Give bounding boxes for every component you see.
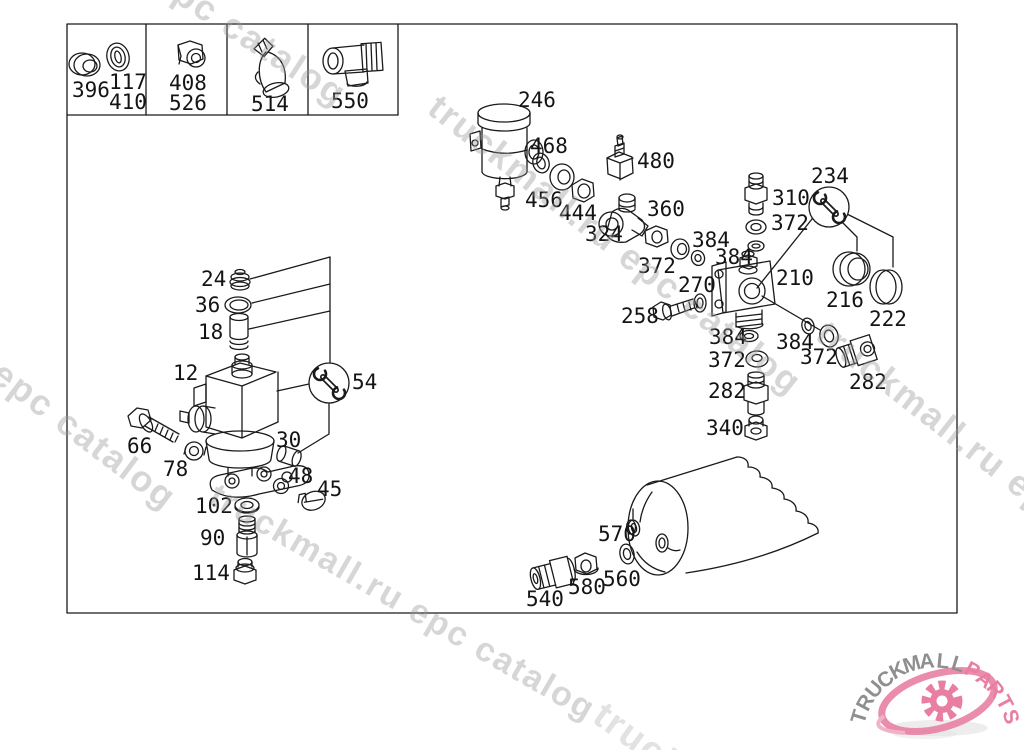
part-label[interactable]: 310 xyxy=(772,188,810,209)
part-label[interactable]: 372 xyxy=(638,256,676,277)
part-label[interactable]: 560 xyxy=(603,569,641,590)
part-label[interactable]: 372 xyxy=(800,347,838,368)
part-label[interactable]: 45 xyxy=(317,479,342,500)
part-label[interactable]: 66 xyxy=(127,436,152,457)
part-label[interactable]: 570 xyxy=(598,524,636,545)
part-label[interactable]: 514 xyxy=(251,94,289,115)
part-label[interactable]: 580 xyxy=(568,577,606,598)
part-label[interactable]: 540 xyxy=(526,589,564,610)
part-label[interactable]: 48 xyxy=(288,466,313,487)
part-label[interactable]: 340 xyxy=(706,418,744,439)
diagram-stage: TRUCKMALLPARTS 3961174104085265145502464… xyxy=(0,0,1024,750)
part-label[interactable]: 24 xyxy=(201,269,226,290)
part-label[interactable]: 384 xyxy=(715,247,753,268)
part-label[interactable]: 396 xyxy=(72,80,110,101)
part-label[interactable]: 18 xyxy=(198,322,223,343)
part-label[interactable]: 526 xyxy=(169,93,207,114)
part-label[interactable]: 360 xyxy=(647,199,685,220)
part-label[interactable]: 372 xyxy=(708,350,746,371)
part-label[interactable]: 12 xyxy=(173,363,198,384)
part-label[interactable]: 246 xyxy=(518,90,556,111)
part-label[interactable]: 114 xyxy=(192,563,230,584)
part-label[interactable]: 210 xyxy=(776,268,814,289)
part-label[interactable]: 234 xyxy=(811,166,849,187)
part-label[interactable]: 550 xyxy=(331,91,369,112)
part-label[interactable]: 54 xyxy=(352,372,377,393)
part-label[interactable]: 270 xyxy=(678,275,716,296)
part-label[interactable]: 372 xyxy=(771,213,809,234)
part-label[interactable]: 324 xyxy=(585,224,623,245)
part-label[interactable]: 410 xyxy=(109,92,147,113)
part-label[interactable]: 468 xyxy=(530,136,568,157)
part-label[interactable]: 444 xyxy=(559,203,597,224)
part-label[interactable]: 90 xyxy=(200,528,225,549)
part-label[interactable]: 78 xyxy=(163,459,188,480)
part-label[interactable]: 30 xyxy=(276,430,301,451)
part-label[interactable]: 258 xyxy=(621,306,659,327)
part-label[interactable]: 480 xyxy=(637,151,675,172)
part-label[interactable]: 36 xyxy=(195,295,220,316)
part-label[interactable]: 216 xyxy=(826,290,864,311)
part-label[interactable]: 384 xyxy=(709,327,747,348)
part-label[interactable]: 282 xyxy=(849,372,887,393)
part-label[interactable]: 282 xyxy=(708,381,746,402)
part-label[interactable]: 456 xyxy=(525,190,563,211)
part-label[interactable]: 102 xyxy=(195,496,233,517)
part-label[interactable]: 222 xyxy=(869,309,907,330)
